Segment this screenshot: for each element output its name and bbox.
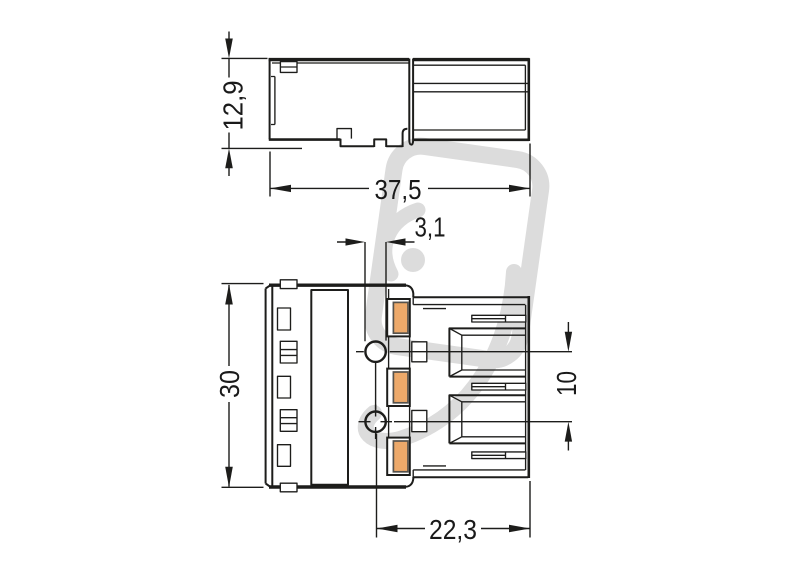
arrowhead: [377, 525, 398, 532]
arrowhead: [270, 185, 291, 192]
latch-window: [278, 445, 291, 467]
dim-side-height-label: 12,9: [218, 81, 249, 131]
side-view: [269, 58, 530, 147]
arrowhead: [225, 148, 233, 168]
arrowhead: [509, 185, 530, 192]
front-latch-bottom: [280, 483, 297, 492]
contact-slot: [387, 299, 410, 475]
arrowhead: [225, 39, 233, 59]
dim-front-height-label: 30: [214, 370, 245, 398]
dim-contact-pitch-label: 10: [551, 371, 582, 396]
dim-hole-diameter-label: 3,1: [415, 212, 446, 243]
arrowhead: [565, 332, 572, 352]
contact-spring: [393, 302, 408, 333]
front-view: [266, 280, 572, 492]
latch-window: [280, 341, 297, 363]
dim-side-width-label: 37,5: [375, 174, 422, 205]
arrowhead: [225, 467, 233, 488]
arrowhead: [225, 284, 233, 305]
contact-spring: [393, 441, 408, 472]
marking-panel: [311, 290, 348, 485]
latch-window: [280, 410, 297, 432]
arrowhead: [346, 238, 366, 245]
arrowhead: [509, 525, 530, 532]
arrowhead: [565, 422, 572, 442]
side-view-dimensions: 12,9 37,5: [218, 32, 531, 206]
watermark-dot: [401, 248, 425, 272]
contact-spring: [393, 372, 408, 403]
technical-drawing-page: 12,9 37,5: [0, 0, 800, 569]
latch-window: [278, 308, 291, 330]
front-latch-top: [280, 280, 297, 289]
latch-window: [278, 376, 291, 398]
dim-front-width-label: 22,3: [429, 514, 477, 545]
